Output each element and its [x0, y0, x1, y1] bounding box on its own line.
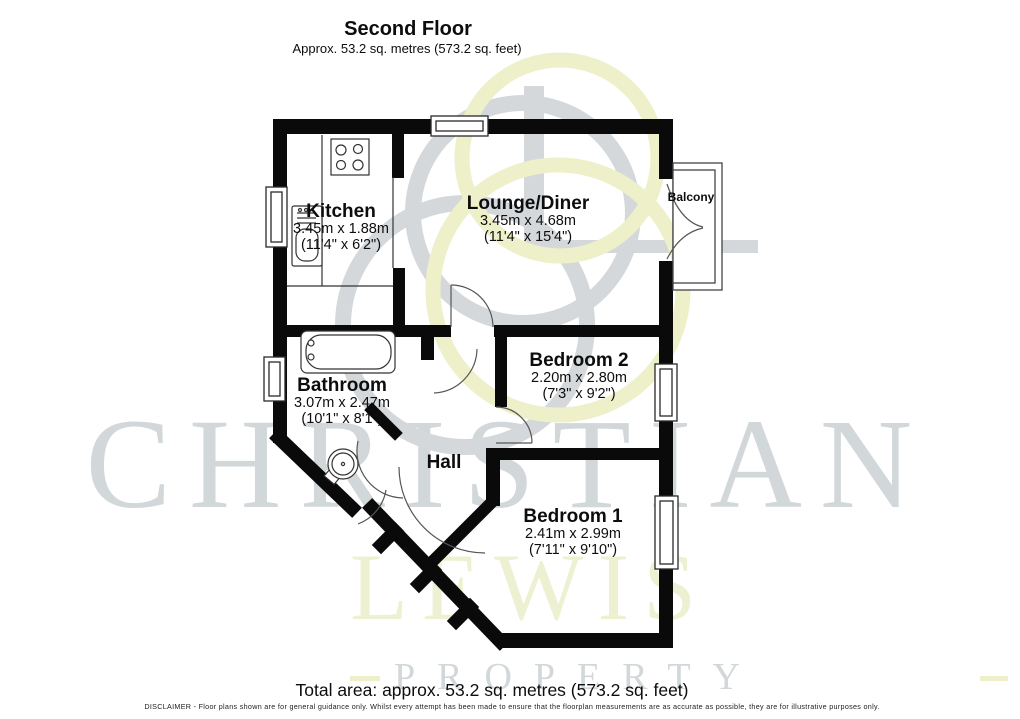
kitchen-metric: 3.45m x 1.88m	[293, 222, 389, 238]
bedroom1-name: Bedroom 1	[523, 507, 622, 527]
disclaimer-text: DISCLAIMER - Floor plans shown are for g…	[144, 702, 879, 711]
window-kitchen	[266, 187, 287, 247]
bedroom1-metric: 2.41m x 2.99m	[523, 527, 622, 543]
kitchen-name: Kitchen	[293, 202, 389, 222]
bathroom-label: Bathroom 3.07m x 2.47m (10'1" x 8'1")	[294, 376, 390, 428]
window-bedroom1	[655, 496, 678, 569]
bedroom2-metric: 2.20m x 2.80m	[529, 371, 628, 387]
page-subtitle: Approx. 53.2 sq. metres (573.2 sq. feet)	[292, 41, 521, 56]
balcony-railing	[673, 163, 722, 290]
kitchen-imperial: (11'4" x 6'2")	[293, 238, 389, 254]
window-bedroom2	[655, 364, 677, 421]
bathroom-metric: 3.07m x 2.47m	[294, 396, 390, 412]
lounge-imperial: (11'4" x 15'4")	[467, 230, 589, 246]
bedroom2-imperial: (7'3" x 9'2")	[529, 387, 628, 403]
bedroom1-label: Bedroom 1 2.41m x 2.99m (7'11" x 9'10")	[523, 507, 622, 559]
bedroom1-imperial: (7'11" x 9'10")	[523, 543, 622, 559]
page-title: Second Floor	[344, 18, 472, 41]
lounge-metric: 3.45m x 4.68m	[467, 214, 589, 230]
bathtub	[301, 331, 395, 373]
total-area-text: Total area: approx. 53.2 sq. metres (573…	[296, 680, 689, 701]
hall-label: Hall	[427, 452, 462, 474]
wash-basin	[324, 449, 358, 484]
floorplan-page: CHRISTIAN LEWIS PROPERTY	[0, 0, 1020, 719]
balcony-label: Balcony	[668, 190, 715, 204]
hob	[331, 139, 369, 175]
kitchen-label: Kitchen 3.45m x 1.88m (11'4" x 6'2")	[293, 202, 389, 254]
bedroom2-label: Bedroom 2 2.20m x 2.80m (7'3" x 9'2")	[529, 351, 628, 403]
bathroom-name: Bathroom	[294, 376, 390, 396]
window-bathroom	[264, 357, 285, 401]
window-top	[431, 116, 488, 136]
lounge-label: Lounge/Diner 3.45m x 4.68m (11'4" x 15'4…	[467, 194, 589, 246]
lounge-name: Lounge/Diner	[467, 194, 589, 214]
bathroom-imperial: (10'1" x 8'1")	[294, 412, 390, 428]
floorplan-drawing	[0, 0, 1020, 719]
bedroom2-name: Bedroom 2	[529, 351, 628, 371]
